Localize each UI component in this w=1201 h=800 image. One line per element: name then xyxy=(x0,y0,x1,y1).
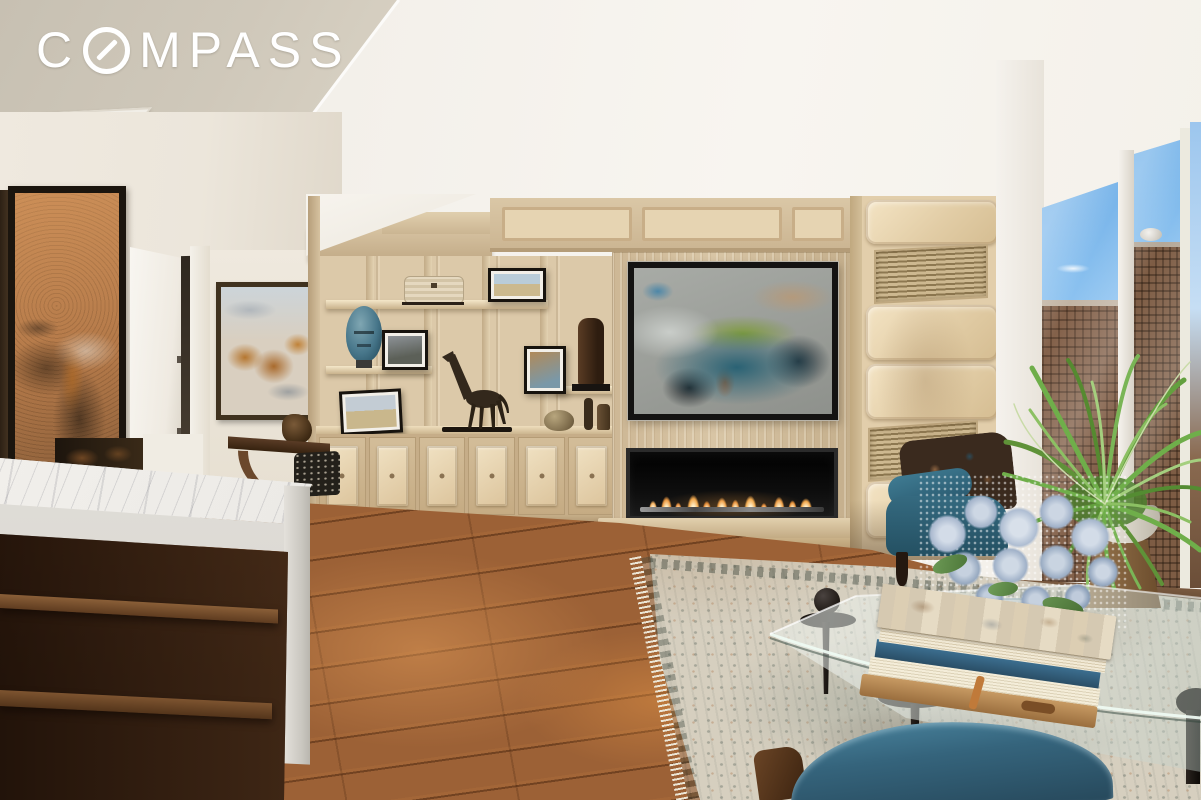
armchair-leg xyxy=(896,552,908,586)
band-panel xyxy=(792,207,844,241)
compass-logo-o-icon xyxy=(83,27,130,74)
box-base xyxy=(402,302,464,305)
compass-logo-text-c: C xyxy=(36,25,80,75)
cabinet-door xyxy=(468,437,515,515)
framed-photo-leaning xyxy=(339,388,403,435)
photo-beach xyxy=(494,274,540,296)
cabinet-door xyxy=(369,437,416,515)
island-marble-waterfall xyxy=(284,485,310,764)
round-jar xyxy=(544,410,574,431)
cabinet-door xyxy=(518,437,565,515)
abstract-painting-copper-canvas xyxy=(15,193,119,475)
wood-figure-sculpture xyxy=(578,318,604,386)
framed-art-small xyxy=(524,346,566,394)
framed-photo-beach xyxy=(488,268,546,302)
mask-sculpture xyxy=(346,306,382,362)
photo-gray xyxy=(388,336,422,364)
burner-bar xyxy=(640,507,824,512)
giraffe-sculpture xyxy=(432,348,522,434)
mask-eyes xyxy=(354,331,374,334)
listing-photo-living-room: C MPASS xyxy=(0,0,1201,800)
small-vessel xyxy=(597,404,610,430)
mask-mouth xyxy=(357,344,371,347)
leather-door-panel xyxy=(476,446,507,506)
small-vessel xyxy=(584,398,593,430)
mask-stand xyxy=(356,360,372,368)
leather-door-panel xyxy=(576,446,607,506)
abstract-painting-hallway xyxy=(216,282,322,420)
leather-wall-panel xyxy=(866,200,998,244)
band-panel xyxy=(642,207,782,241)
builtin-top-band xyxy=(490,198,852,252)
photo-city xyxy=(530,352,560,388)
console-sculpture xyxy=(282,414,312,444)
figure-base xyxy=(572,384,610,391)
photo-landscape xyxy=(345,395,397,430)
cabinet-door xyxy=(568,437,615,515)
leather-door-panel xyxy=(427,446,458,506)
framed-photo-gray xyxy=(382,330,428,370)
compass-logo: C MPASS xyxy=(36,24,350,76)
woven-box xyxy=(404,276,464,304)
cabinet-door xyxy=(419,437,466,515)
compass-logo-text-mpass: MPASS xyxy=(139,25,350,75)
leather-door-panel xyxy=(377,446,408,506)
leather-door-panel xyxy=(526,446,557,506)
cabinet-row xyxy=(316,434,618,518)
abstract-painting-fireplace xyxy=(628,262,838,420)
box-clasp xyxy=(431,283,437,288)
band-panel xyxy=(502,207,632,241)
